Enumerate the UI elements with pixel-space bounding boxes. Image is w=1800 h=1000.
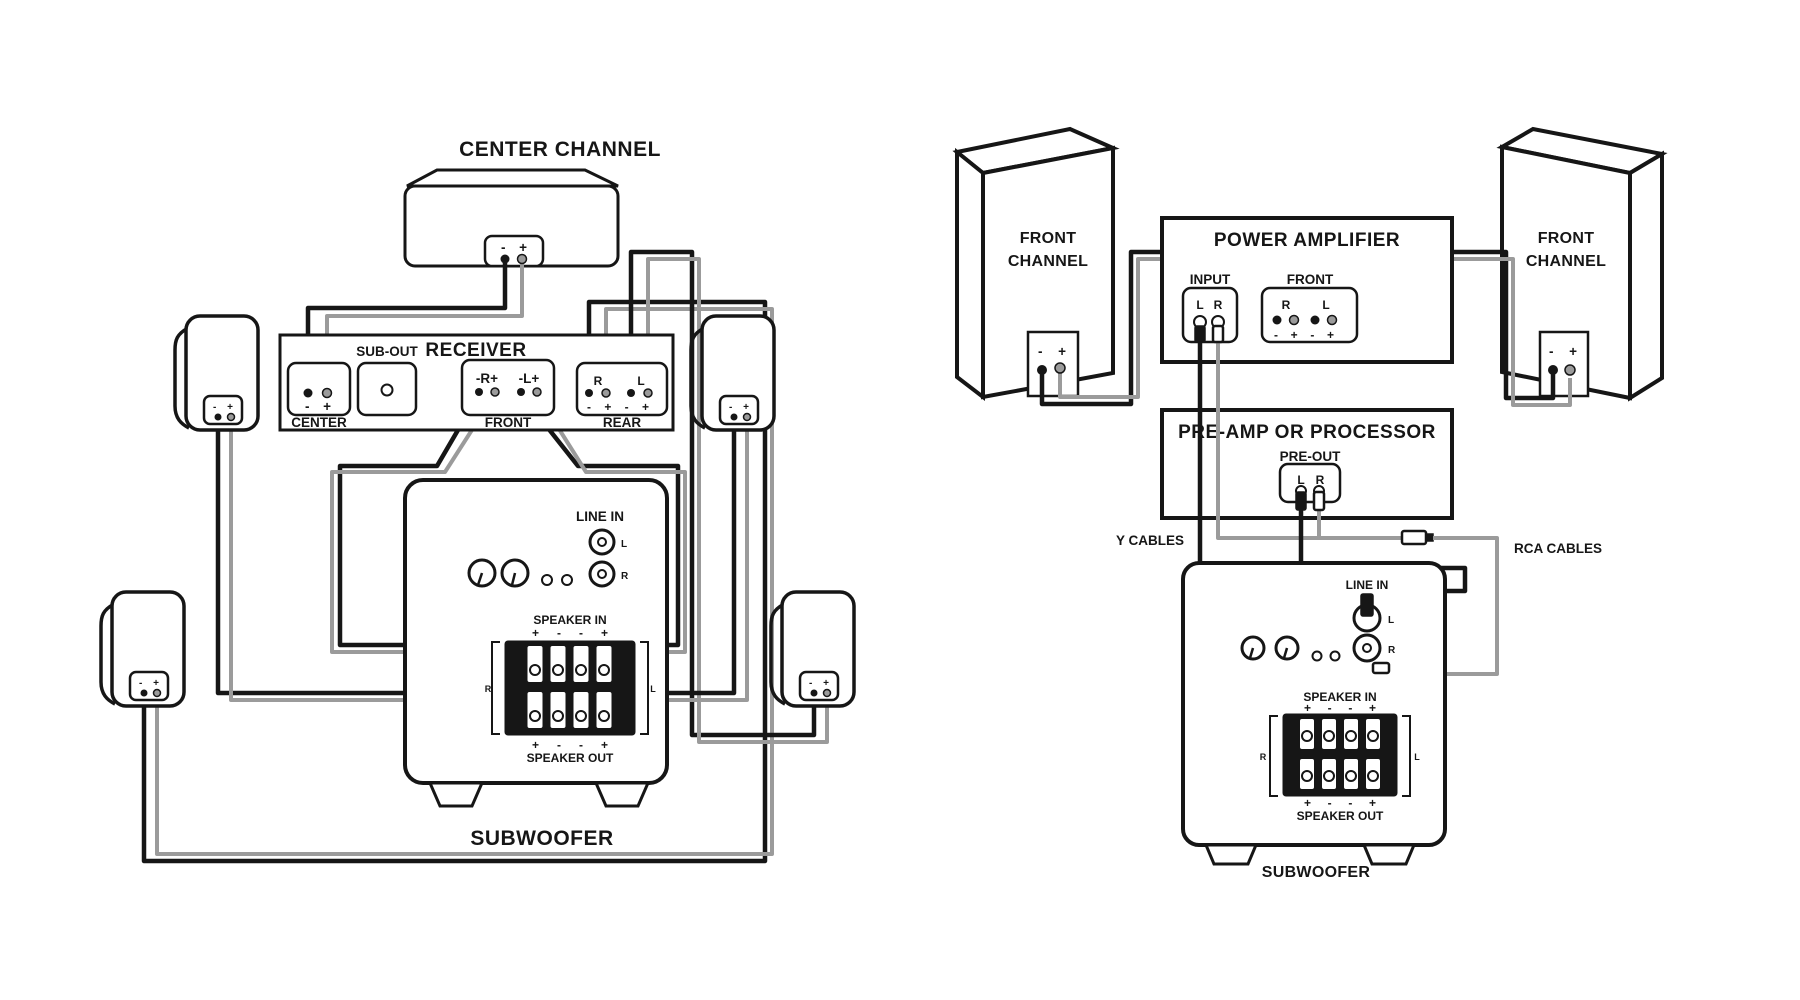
rear-l-plus-terminal — [644, 389, 652, 397]
switch-button — [562, 575, 572, 585]
receiver-front-terminal — [462, 360, 554, 415]
input-l-plug — [1195, 326, 1205, 342]
amp-front-r-letter: R — [1282, 298, 1291, 312]
front-channel-speaker-right: FRONT CHANNEL - + — [1502, 129, 1662, 398]
amp-input-l-letter: L — [1196, 298, 1203, 312]
center-speaker-top — [407, 170, 618, 186]
satellite-front-left — [175, 316, 258, 430]
center-speaker-polarity: - + — [501, 240, 527, 255]
speaker-out-label: SPEAKER OUT — [527, 751, 614, 765]
amp-front-l-plus — [1328, 316, 1337, 325]
y-cable-white-connector-tip — [1426, 534, 1433, 541]
front-channel-left-label1: FRONT — [1020, 230, 1077, 247]
pre-out-label: PRE-OUT — [1280, 449, 1342, 464]
rca-white-plug — [1373, 663, 1389, 673]
receiver-label: RECEIVER — [425, 340, 526, 361]
line-in-l-letter: L — [1388, 615, 1394, 626]
subwoofer-right-label: SUBWOOFER — [1262, 864, 1371, 881]
left-diagram: CENTER CHANNEL - + RECEIVER — [101, 138, 854, 861]
front-channel-speaker-left: FRONT CHANNEL - + — [957, 129, 1113, 397]
input-r-plug — [1213, 326, 1223, 342]
input-label: INPUT — [1190, 272, 1231, 287]
front-channel-right-label1: FRONT — [1538, 230, 1595, 247]
receiver: RECEIVER - + CENTER SUB-OUT -R+ -L+ FRON… — [280, 335, 673, 430]
line-in-r-jack-pin — [598, 570, 606, 578]
tower-right-minus-terminal — [1548, 365, 1558, 375]
tower-terminal-plate — [1540, 332, 1588, 396]
line-in-label: LINE IN — [576, 509, 624, 524]
strip-l-letter: L — [650, 684, 656, 694]
tower-polarity: - + — [1038, 344, 1066, 359]
y-cable-white-connector — [1402, 531, 1426, 544]
pre-out-l-plug — [1296, 492, 1306, 510]
pre-out-block — [1280, 464, 1340, 502]
amp-input-r-letter: R — [1214, 298, 1223, 312]
satellite-rear-right — [771, 592, 854, 706]
rca-black-plug — [1361, 594, 1373, 616]
subwoofer-left-foot — [430, 783, 482, 806]
preamp: PRE-AMP OR PROCESSOR PRE-OUT L R — [1162, 410, 1452, 518]
subwoofer-right-foot — [1364, 845, 1414, 864]
switch-button — [1313, 652, 1322, 661]
speaker-in-label: SPEAKER IN — [533, 613, 606, 627]
rear-r-label: R — [594, 374, 603, 388]
line-in-r-jack-pin — [1363, 644, 1371, 652]
center-terminal-label: CENTER — [291, 415, 347, 430]
center-minus-terminal — [304, 389, 313, 398]
line-in-l-jack-pin — [598, 538, 606, 546]
strip-r-letter: R — [485, 684, 492, 694]
rear-l-label: L — [637, 374, 644, 388]
center-cup-minus-terminal — [501, 255, 510, 264]
strip-l-letter: L — [1414, 752, 1420, 762]
switch-button — [542, 575, 552, 585]
tower-polarity: - + — [1549, 344, 1577, 359]
line-in-l-letter: L — [621, 539, 627, 550]
speaker-terminal-strip — [505, 641, 635, 735]
front-l-plus-terminal — [533, 388, 541, 396]
amp-input-block — [1183, 288, 1237, 342]
pre-out-r-letter: R — [1316, 473, 1325, 487]
line-in-r-letter: R — [621, 571, 629, 582]
front-r-label: -R+ — [476, 371, 498, 386]
center-cup-plus-terminal — [518, 255, 527, 264]
subwoofer-right-foot — [1206, 845, 1256, 864]
front-channel-right-label2: CHANNEL — [1526, 253, 1606, 270]
tower-left-plus-terminal — [1055, 363, 1065, 373]
line-in-r-letter: R — [1388, 645, 1396, 656]
rear-r-minus-terminal — [585, 389, 593, 397]
manual-page: - + CENTER CHANNEL - + — [0, 0, 1800, 1000]
front-channel-left-label2: CHANNEL — [1008, 253, 1088, 270]
amp-front-r-minus — [1273, 316, 1282, 325]
line-in-label: LINE IN — [1346, 578, 1389, 592]
sub-out-jack — [382, 385, 393, 396]
rear-l-minus-terminal — [627, 389, 635, 397]
tower-left-minus-terminal — [1037, 365, 1047, 375]
switch-button — [1331, 652, 1340, 661]
center-channel-speaker: - + — [405, 170, 618, 266]
power-amplifier-label: POWER AMPLIFIER — [1214, 230, 1400, 251]
tower-terminal-plate — [1028, 332, 1078, 396]
satellite-rear-left — [101, 592, 184, 706]
center-plus-terminal — [323, 389, 332, 398]
front-r-plus-terminal — [491, 388, 499, 396]
tower-side-face — [957, 152, 983, 397]
amp-front-l-letter: L — [1322, 298, 1329, 312]
tower-side-face — [1630, 154, 1662, 398]
rear-terminal-label: REAR — [603, 415, 642, 430]
center-terminal-polarity: - + — [305, 399, 331, 414]
right-diagram: FRONT CHANNEL - + FRONT CHANNEL - + POWE… — [957, 129, 1662, 881]
center-channel-label: CENTER CHANNEL — [459, 138, 661, 161]
rca-cables-label: RCA CABLES — [1514, 541, 1602, 556]
tower-right-plus-terminal — [1565, 365, 1575, 375]
subwoofer-left: LINE IN L R SPEAKER IN + - - + R L — [405, 480, 667, 806]
receiver-center-terminal — [288, 363, 350, 415]
strip-r-letter: R — [1260, 752, 1267, 762]
amp-front-label: FRONT — [1287, 272, 1334, 287]
front-l-label: -L+ — [519, 371, 540, 386]
rear-r-plus-terminal — [602, 389, 610, 397]
pre-out-l-letter: L — [1297, 473, 1304, 487]
subwoofer-left-foot — [596, 783, 648, 806]
subwoofer-right-box — [1183, 563, 1445, 845]
front-terminal-label: FRONT — [485, 415, 532, 430]
amp-front-l-minus — [1311, 316, 1320, 325]
amp-front-r-plus — [1290, 316, 1299, 325]
wiring-diagram: - + CENTER CHANNEL - + — [0, 0, 1800, 1000]
satellite-front-right — [691, 316, 774, 430]
speaker-out-label: SPEAKER OUT — [1297, 809, 1384, 823]
subwoofer-left-label: SUBWOOFER — [470, 827, 613, 850]
subwoofer-right: LINE IN L R SPEAKER IN + - - + R L — [1183, 563, 1445, 864]
pre-out-r-plug — [1314, 492, 1324, 510]
front-l-minus-terminal — [517, 388, 525, 396]
y-cables-label: Y CABLES — [1116, 533, 1184, 548]
sub-out-label: SUB-OUT — [356, 344, 418, 359]
front-r-minus-terminal — [475, 388, 483, 396]
